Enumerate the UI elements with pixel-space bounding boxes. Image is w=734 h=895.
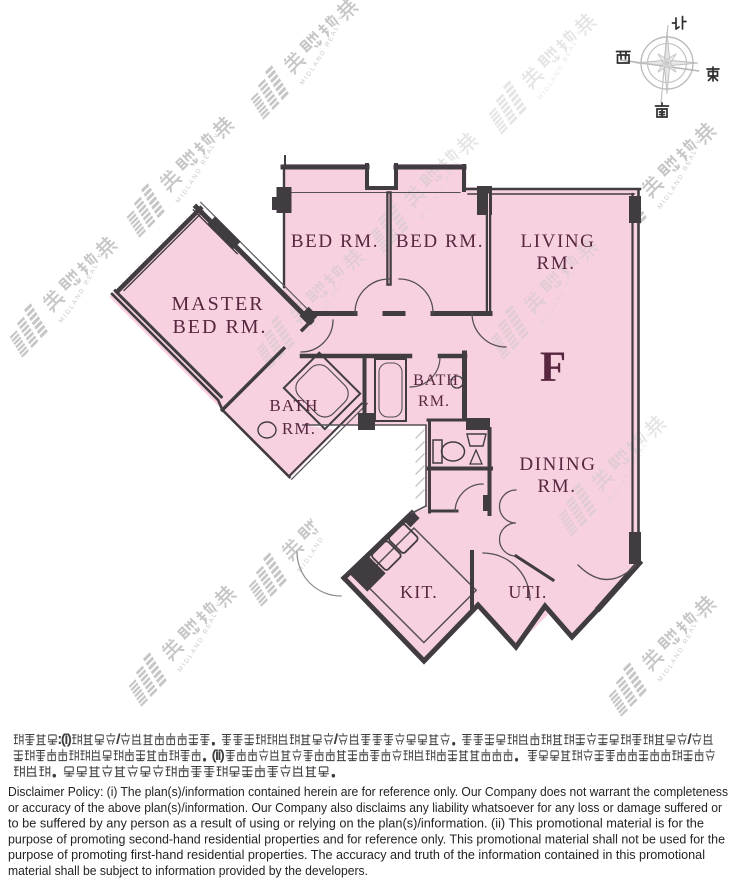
svg-text:purpose of promoting first-han: purpose of promoting first-hand resident… [8,847,705,862]
svg-text:RM.: RM. [537,476,576,497]
svg-text:or accuracy of the above plan(: or accuracy of the above plan(s)/informa… [8,800,723,815]
svg-text:BED RM.: BED RM. [291,231,379,252]
svg-text:BATH: BATH [413,372,459,389]
svg-text:LIVING: LIVING [520,231,595,252]
svg-text:(ii): (ii) [212,747,224,762]
svg-text:KIT.: KIT. [400,582,438,602]
svg-text:purpose of promoting second-ha: purpose of promoting second-hand residen… [8,831,725,846]
svg-text:RM.: RM. [282,419,316,438]
svg-text:BED RM.: BED RM. [172,316,267,338]
svg-text:RM.: RM. [418,393,450,410]
svg-text::(i): :(i) [58,732,71,747]
svg-text:UTI.: UTI. [508,582,547,602]
svg-text:BATH: BATH [269,396,318,415]
svg-text:material shall be subject to i: material shall be subject to information… [8,863,368,878]
svg-text:RM.: RM. [536,253,575,274]
svg-text:DINING: DINING [519,454,596,475]
svg-text:BED RM.: BED RM. [396,231,484,252]
svg-text:to be suffered by any person a: to be suffered by any person as a result… [8,816,704,831]
svg-text:MASTER: MASTER [171,293,264,315]
svg-text:Disclaimer Policy: (i) The pla: Disclaimer Policy: (i) The plan(s)/infor… [8,784,728,799]
svg-text:F: F [540,344,566,391]
